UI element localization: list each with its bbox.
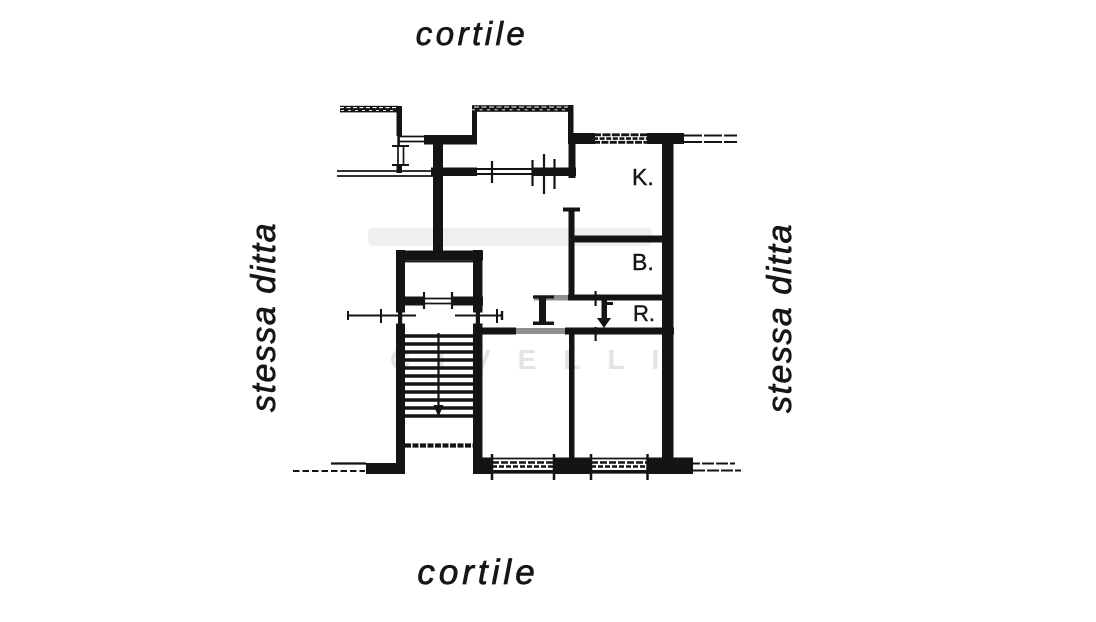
svg-text:R.: R. [633,301,655,326]
svg-text:B.: B. [632,249,654,275]
svg-text:K.: K. [632,164,654,190]
svg-text:cortile: cortile [417,553,538,592]
svg-text:cortile: cortile [416,15,529,52]
svg-text:stessa ditta: stessa ditta [761,223,799,413]
svg-text:stessa ditta: stessa ditta [245,222,283,412]
